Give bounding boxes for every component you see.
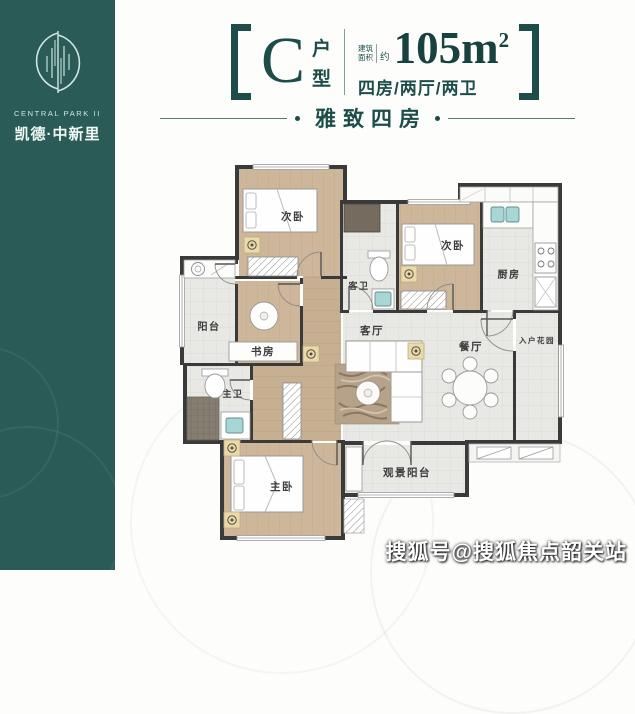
brand-logo: CENTRAL PARK II 凯德·中新里 bbox=[0, 26, 115, 144]
area-block: 建筑 面积 约 105m2 四房/两厅/两卫 bbox=[358, 24, 509, 100]
header-divider bbox=[344, 29, 345, 95]
room-label-master-bedroom: 主卧 bbox=[270, 480, 294, 493]
area-value: 105m2 bbox=[394, 26, 510, 71]
subtitle-line bbox=[448, 118, 575, 119]
unit-type-label: 户 型 bbox=[312, 24, 331, 100]
subtitle-line bbox=[160, 118, 287, 119]
kitchen-sink bbox=[491, 207, 504, 222]
shower bbox=[187, 397, 219, 440]
subtitle-dot bbox=[435, 116, 440, 121]
room-label-view-balcony: 观景阳台 bbox=[383, 466, 431, 479]
room-label-bedroom-top-right: 次卧 bbox=[441, 239, 465, 252]
bath-sink bbox=[226, 418, 243, 433]
bracket-close bbox=[519, 24, 539, 100]
wardrobe-top-right bbox=[401, 291, 446, 309]
room-label-kitchen: 厨房 bbox=[498, 268, 521, 281]
plant-icon bbox=[224, 512, 240, 528]
bed-top-left bbox=[243, 189, 317, 232]
room-label-study: 书房 bbox=[251, 345, 275, 358]
bracket-open bbox=[231, 24, 251, 100]
brand-sidebar: CENTRAL PARK II 凯德·中新里 bbox=[0, 0, 115, 570]
planter bbox=[346, 447, 362, 491]
plant-icon bbox=[303, 346, 319, 362]
room-label-dining: 餐厅 bbox=[458, 340, 483, 353]
area-prefix: 建筑 面积 bbox=[358, 44, 377, 63]
subtitle-text: 雅致四房 bbox=[308, 103, 427, 133]
plant-icon bbox=[224, 440, 240, 456]
watermark: 搜狐号@搜狐焦点韶关站 bbox=[386, 536, 627, 566]
laundry-counter bbox=[184, 260, 235, 278]
plant-icon bbox=[408, 343, 424, 359]
toilet bbox=[370, 257, 388, 281]
room-label-guest-bath: 客卫 bbox=[347, 280, 369, 291]
central-park-logo-icon bbox=[21, 26, 95, 98]
unit-type-char: 户 bbox=[312, 34, 331, 61]
entry-cabinet bbox=[344, 204, 380, 232]
area-approx: 约 bbox=[380, 49, 390, 63]
washing-machine bbox=[192, 263, 205, 276]
room-label-bedroom-top-left: 次卧 bbox=[281, 210, 305, 223]
plant-icon bbox=[401, 266, 417, 282]
room-label-master-bath: 主卫 bbox=[222, 388, 243, 399]
room-label-entry-garden: 入户花园 bbox=[518, 335, 555, 345]
ac-platform-lower bbox=[344, 499, 364, 533]
brand-name-cn: 凯德·中新里 bbox=[0, 123, 115, 144]
brand-name-en: CENTRAL PARK II bbox=[0, 109, 115, 118]
room-label-living: 客厅 bbox=[359, 324, 384, 337]
room-label-balcony: 阳台 bbox=[198, 320, 221, 333]
page: { "brand": { "name_en": "CENTRAL PARK II… bbox=[0, 0, 635, 570]
ac-platform bbox=[469, 444, 560, 462]
kitchen-sink bbox=[506, 207, 519, 222]
subtitle-dot bbox=[295, 116, 300, 121]
bath-sink bbox=[375, 292, 391, 306]
stove bbox=[535, 243, 556, 273]
dining-table bbox=[453, 371, 487, 405]
corridor-closet bbox=[283, 383, 301, 439]
unit-type-char: 型 bbox=[312, 64, 331, 91]
unit-type-letter: C bbox=[261, 24, 305, 100]
subtitle-row: 雅致四房 bbox=[160, 103, 575, 133]
floorplan: 次卧 次卧 厨房 客卫 阳台 书房 客厅 餐厅 入户花园 主卫 主卧 观景阳台 bbox=[125, 145, 610, 543]
layout-description: 四房/两厅/两卫 bbox=[358, 74, 509, 99]
wardrobe-top-left bbox=[248, 257, 298, 276]
plant-icon bbox=[244, 237, 260, 253]
plan-header: C 户 型 建筑 面积 约 105m2 四房/两厅/两卫 bbox=[231, 24, 539, 100]
